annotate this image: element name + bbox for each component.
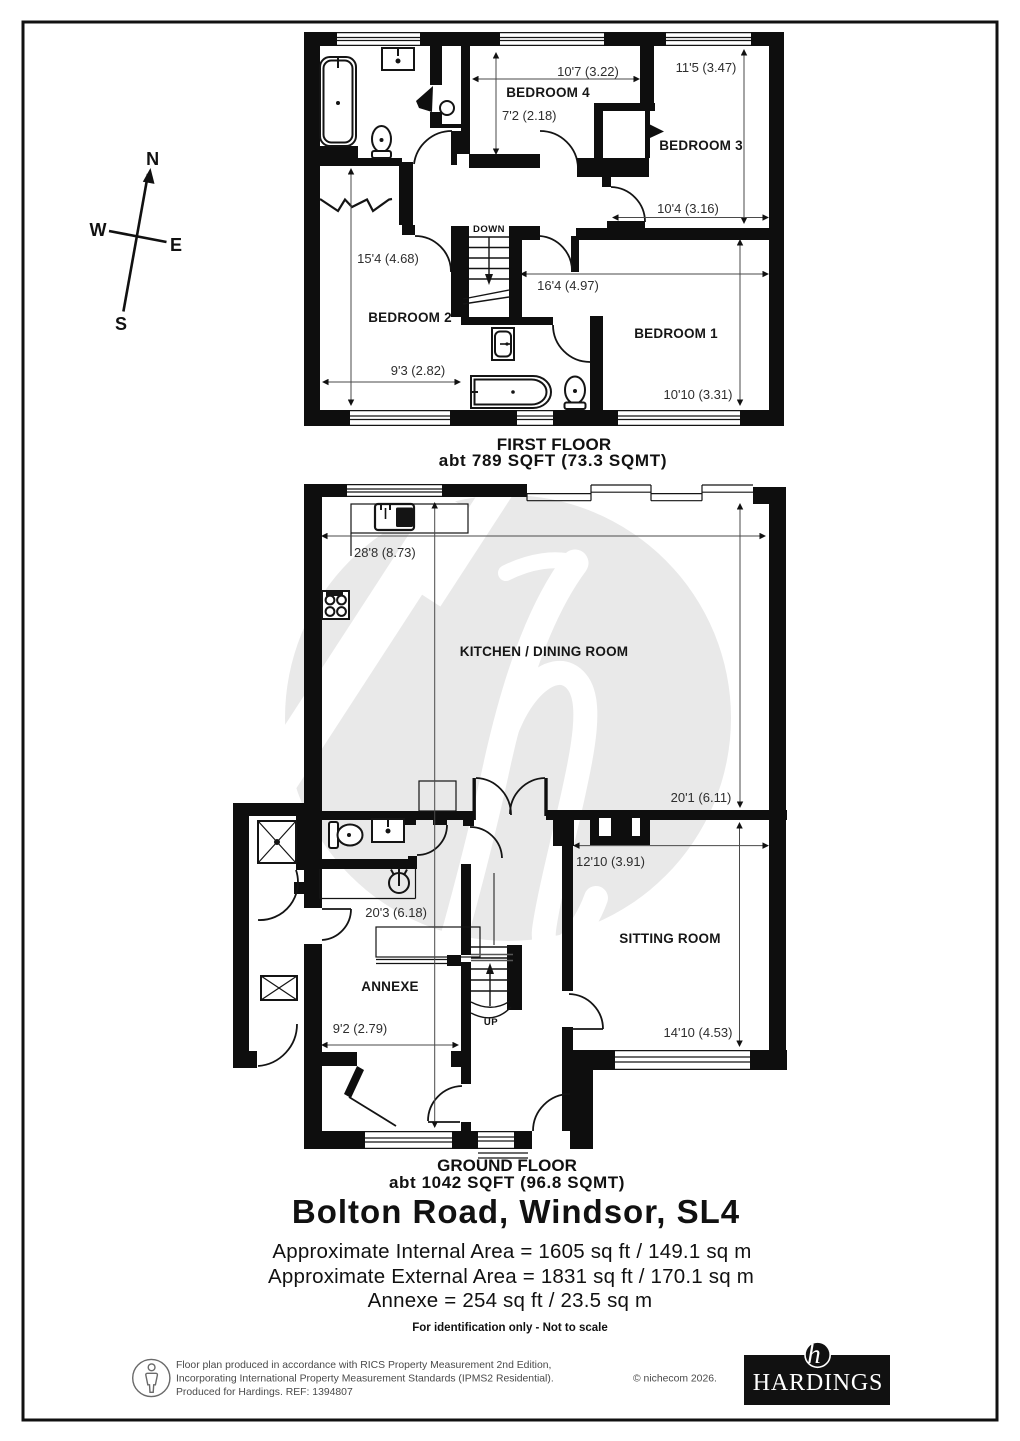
svg-text:BEDROOM 3: BEDROOM 3 <box>659 138 743 153</box>
svg-text:For identification only - Not: For identification only - Not to scale <box>412 1322 608 1334</box>
svg-text:ANNEXE: ANNEXE <box>361 979 418 994</box>
svg-text:E: E <box>170 235 182 255</box>
svg-text:28'8 (8.73): 28'8 (8.73) <box>354 545 416 560</box>
svg-text:N: N <box>146 149 159 169</box>
svg-text:14'10 (4.53): 14'10 (4.53) <box>664 1025 733 1040</box>
svg-text:DOWN: DOWN <box>473 224 505 235</box>
svg-text:© nichecom 2026.: © nichecom 2026. <box>633 1374 717 1385</box>
svg-text:10'10 (3.31): 10'10 (3.31) <box>664 387 733 402</box>
svg-text:KITCHEN / DINING ROOM: KITCHEN / DINING ROOM <box>460 644 628 659</box>
svg-text:15'4 (4.68): 15'4 (4.68) <box>357 251 419 266</box>
svg-text:16'4 (4.97): 16'4 (4.97) <box>537 278 599 293</box>
svg-text:10'4 (3.16): 10'4 (3.16) <box>657 201 719 216</box>
svg-text:HARDINGS: HARDINGS <box>753 1370 883 1396</box>
svg-text:Floor plan produced in accorda: Floor plan produced in accordance with R… <box>176 1360 551 1371</box>
svg-text:9'3 (2.82): 9'3 (2.82) <box>391 363 446 378</box>
svg-text:Incorporating International Pr: Incorporating International Property Mea… <box>176 1374 554 1385</box>
svg-text:abt 789 SQFT (73.3 SQMT): abt 789 SQFT (73.3 SQMT) <box>439 451 667 470</box>
svg-text:SITTING ROOM: SITTING ROOM <box>619 931 720 946</box>
svg-text:Bolton Road, Windsor, SL4: Bolton Road, Windsor, SL4 <box>292 1193 740 1230</box>
svg-text:BEDROOM 2: BEDROOM 2 <box>368 310 452 325</box>
svg-text:12'10 (3.91): 12'10 (3.91) <box>576 854 645 869</box>
svg-text:S: S <box>115 314 127 334</box>
svg-text:11'5 (3.47): 11'5 (3.47) <box>676 60 737 75</box>
svg-text:UP: UP <box>484 1017 498 1028</box>
svg-text:h: h <box>807 1339 821 1369</box>
svg-text:20'3 (6.18): 20'3 (6.18) <box>365 905 427 920</box>
svg-text:W: W <box>90 220 107 240</box>
svg-text:BEDROOM 4: BEDROOM 4 <box>506 85 590 100</box>
svg-text:abt 1042 SQFT (96.8 SQMT): abt 1042 SQFT (96.8 SQMT) <box>389 1173 625 1192</box>
svg-text:Produced for Hardings. REF:: Produced for Hardings. REF: 1394807 <box>176 1387 353 1398</box>
svg-text:10'7 (3.22): 10'7 (3.22) <box>557 64 619 79</box>
svg-text:Approximate Internal Area = 16: Approximate Internal Area = 1605 sq ft /… <box>272 1240 751 1263</box>
svg-text:7'2 (2.18): 7'2 (2.18) <box>502 108 557 123</box>
svg-text:20'1 (6.11): 20'1 (6.11) <box>671 790 732 805</box>
svg-text:BEDROOM 1: BEDROOM 1 <box>634 326 718 341</box>
svg-text:Annexe = 254 sq ft / 23.5 sq m: Annexe = 254 sq ft / 23.5 sq m <box>368 1289 653 1312</box>
svg-text:Approximate External Area = 18: Approximate External Area = 1831 sq ft /… <box>268 1265 754 1288</box>
svg-text:9'2 (2.79): 9'2 (2.79) <box>333 1021 388 1036</box>
